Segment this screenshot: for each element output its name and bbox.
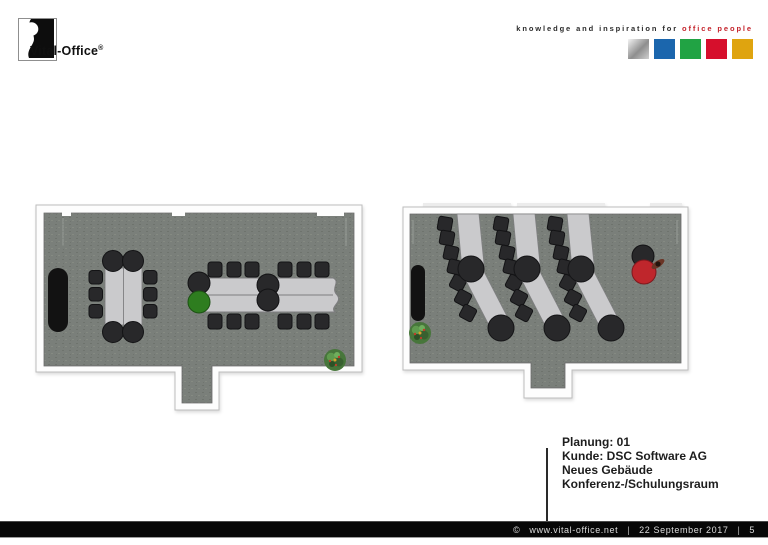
chair bbox=[144, 288, 158, 302]
chair bbox=[103, 322, 124, 343]
sideboard bbox=[411, 265, 425, 321]
wall-pillar bbox=[317, 212, 344, 216]
plan-annotation: Planung: 01 Kunde: DSC Software AG Neues… bbox=[562, 435, 719, 491]
plant bbox=[409, 322, 431, 344]
tagline-red: office people bbox=[682, 24, 753, 33]
palette-square-red bbox=[706, 39, 727, 59]
logo-wordmark: Vital-Office® bbox=[30, 44, 104, 58]
wall-pillar bbox=[172, 212, 185, 216]
chair bbox=[123, 251, 144, 272]
chair bbox=[315, 262, 329, 277]
chair bbox=[208, 262, 222, 277]
chair bbox=[297, 314, 311, 329]
chair bbox=[89, 271, 103, 285]
tagline-black: knowledge and inspiration for bbox=[516, 24, 678, 33]
chair bbox=[89, 288, 103, 302]
page: { "header": { "logo": { "name": "Vital-O… bbox=[0, 0, 768, 545]
wall-pillar bbox=[62, 212, 71, 216]
palette-square-green bbox=[680, 39, 701, 59]
footer-separator: | bbox=[627, 525, 630, 535]
chair bbox=[103, 251, 124, 272]
tagline: knowledge and inspiration for office peo… bbox=[516, 24, 753, 33]
annotation-line-raum: Konferenz-/Schulungsraum bbox=[562, 477, 719, 491]
footer-url: www.vital-office.net bbox=[529, 525, 618, 535]
palette-square-blue bbox=[654, 39, 675, 59]
chair bbox=[227, 262, 241, 277]
chair bbox=[89, 305, 103, 319]
sideboard bbox=[48, 268, 68, 332]
chair bbox=[278, 262, 292, 277]
brand-color-squares bbox=[628, 39, 753, 59]
chair bbox=[123, 322, 144, 343]
chair bbox=[278, 314, 292, 329]
annotation-line-gebaeude: Neues Gebäude bbox=[562, 463, 719, 477]
chair bbox=[227, 314, 241, 329]
logo-name: Vital-Office bbox=[30, 44, 98, 58]
chair bbox=[297, 262, 311, 277]
registered-mark: ® bbox=[98, 45, 103, 52]
floor-plan-training-room bbox=[400, 202, 692, 409]
chair bbox=[144, 305, 158, 319]
floor-plan-conference-room bbox=[33, 202, 365, 419]
footer-bar: © www.vital-office.net | 22 September 20… bbox=[0, 521, 768, 538]
plant bbox=[324, 349, 346, 371]
palette-square-silver bbox=[628, 39, 649, 59]
copyright-symbol: © bbox=[513, 525, 520, 535]
red-table bbox=[632, 260, 656, 284]
annotation-rule bbox=[546, 448, 548, 521]
chair bbox=[208, 314, 222, 329]
annotation-line-kunde: Kunde: DSC Software AG bbox=[562, 449, 719, 463]
annotation-line-planung: Planung: 01 bbox=[562, 435, 719, 449]
footer-separator: | bbox=[737, 525, 740, 535]
chair bbox=[245, 262, 259, 277]
footer-date: 22 September 2017 bbox=[639, 525, 728, 535]
chair bbox=[245, 314, 259, 329]
page-number: 5 bbox=[749, 525, 755, 535]
palette-square-gold bbox=[732, 39, 753, 59]
green-chair bbox=[188, 291, 210, 313]
chair bbox=[257, 289, 279, 311]
chair bbox=[144, 271, 158, 285]
chair bbox=[315, 314, 329, 329]
